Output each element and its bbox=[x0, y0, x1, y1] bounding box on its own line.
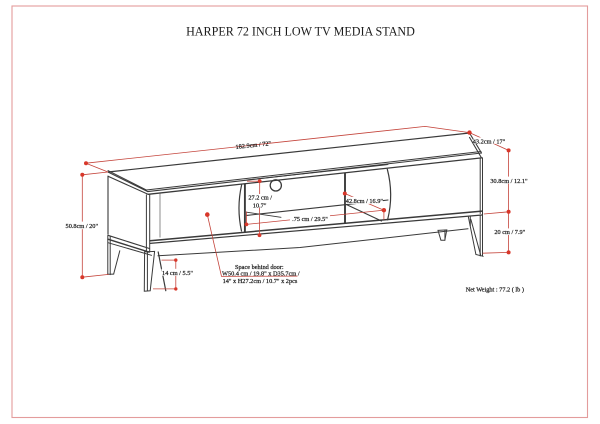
svg-text:42.8cm / 16.9": 42.8cm / 16.9" bbox=[346, 198, 384, 205]
svg-text:14" x H27.2cm / 10.7" x 2pcs: 14" x H27.2cm / 10.7" x 2pcs bbox=[223, 278, 298, 285]
svg-text:Net Weight : 77.2 ( lb ): Net Weight : 77.2 ( lb ) bbox=[466, 286, 524, 293]
svg-text:30.8cm / 12.1": 30.8cm / 12.1" bbox=[490, 178, 528, 185]
svg-text:20 cm / 7.9": 20 cm / 7.9" bbox=[494, 229, 525, 236]
svg-text:27.2 cm /: 27.2 cm / bbox=[248, 195, 272, 202]
svg-text:.75 cm / 29.5": .75 cm / 29.5" bbox=[292, 216, 328, 223]
svg-text:HARPER 72 INCH LOW TV MEDIA ST: HARPER 72 INCH LOW TV MEDIA STAND bbox=[186, 25, 415, 39]
svg-text:W50.4 cm / 19.8" x D35.7cm /: W50.4 cm / 19.8" x D35.7cm / bbox=[222, 270, 300, 277]
svg-text:10.7": 10.7" bbox=[253, 202, 267, 209]
svg-text:50.8cm / 20": 50.8cm / 20" bbox=[66, 223, 99, 230]
svg-text:14 cm / 5.5": 14 cm / 5.5" bbox=[162, 270, 193, 277]
svg-text:43.2cm / 17": 43.2cm / 17" bbox=[473, 138, 506, 145]
